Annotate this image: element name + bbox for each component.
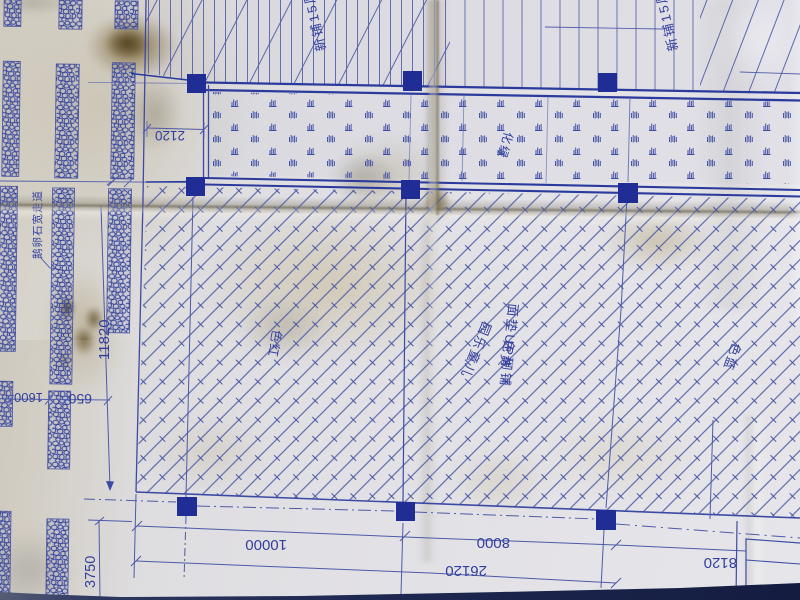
- svg-text:11820: 11820: [96, 319, 113, 360]
- svg-text:1600: 1600: [14, 390, 43, 405]
- svg-text:10000: 10000: [245, 536, 287, 553]
- svg-text:650: 650: [68, 391, 92, 407]
- svg-text:2120: 2120: [155, 128, 185, 143]
- svg-text:8120: 8120: [704, 554, 737, 571]
- svg-text:8000: 8000: [477, 534, 510, 551]
- svg-text:鹅卵石宽走道: 鹅卵石宽走道: [31, 190, 44, 259]
- svg-text:3750: 3750: [83, 556, 99, 588]
- svg-text:26120: 26120: [445, 562, 487, 579]
